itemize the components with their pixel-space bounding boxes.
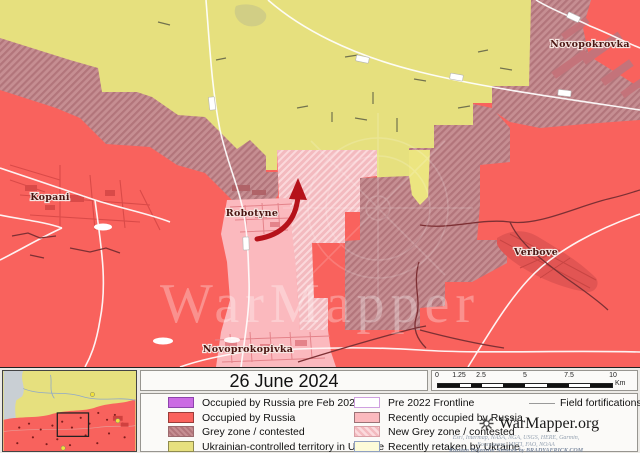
scale-tick: 1.25 [452,372,466,379]
legend-label: Occupied by Russia [202,412,295,425]
warmapper-map-screenshot: WarMapper Kopani Robotyne Novoprokopivka… [0,0,640,453]
robotyne-label: Robotyne [226,208,278,219]
kopani-label: Kopani [30,192,70,203]
scale-tick: 0 [435,372,439,379]
legend-swatch-new-grey-zone [354,426,380,437]
legend-swatch-grey-zone [168,426,194,437]
legend-swatch-recently-occupied [354,412,380,423]
legend-label: Occupied by Russia pre Feb 2022 [202,397,361,410]
attribution: Esri, Intermap, NASA, NGA, USGS, HERE, G… [397,435,635,453]
map-date: 26 June 2024 [141,371,427,391]
scale-unit: Km [615,380,626,387]
fortification-line-swatch [529,403,555,404]
scale-bar-segments [437,383,613,388]
verbove-label: Verbove [513,247,558,258]
main-map: WarMapper Kopani Robotyne Novoprokopivka… [0,0,640,367]
novoprokopivka-label: Novoprokopivka [203,344,294,355]
legend-swatch-pre2022-frontline [354,397,380,408]
date-box: 26 June 2024 [140,370,428,391]
novopokrovka-label: Novopokrovka [550,39,630,50]
legend-label: Grey zone / contested [202,426,305,439]
scale-tick: 7.5 [564,372,574,379]
legend: Occupied by Russia pre Feb 2022 Occupied… [140,393,638,452]
legend-label: Pre 2022 Frontline [388,397,474,410]
legend-swatch-occupied-pre2022 [168,397,194,408]
legend-swatch-occupied [168,412,194,423]
legend-label: Field fortifications [560,397,640,409]
scale-tick: 10 [609,372,617,379]
attribution-line: Russian Defensive Network by BRADYAFRICK… [397,448,635,453]
scale-tick: 2.5 [476,372,486,379]
inset-map-svg [3,371,136,451]
legend-swatch-recently-retaken [354,441,380,452]
branding: WarMapper.org [441,415,637,433]
legend-swatch-ukrainian [168,441,194,452]
inset-map [2,370,137,452]
scale-tick: 5 [523,372,527,379]
info-panel: 26 June 2024 0 1.25 2.5 5 7.5 10 Km [0,367,640,453]
site-name: WarMapper.org [499,415,599,432]
watermark-text: WarMapper [160,273,480,335]
compass-star-icon [479,416,494,431]
legend-item-field-fortifications: Field fortifications [529,397,635,409]
scale-bar: 0 1.25 2.5 5 7.5 10 Km [431,370,638,391]
